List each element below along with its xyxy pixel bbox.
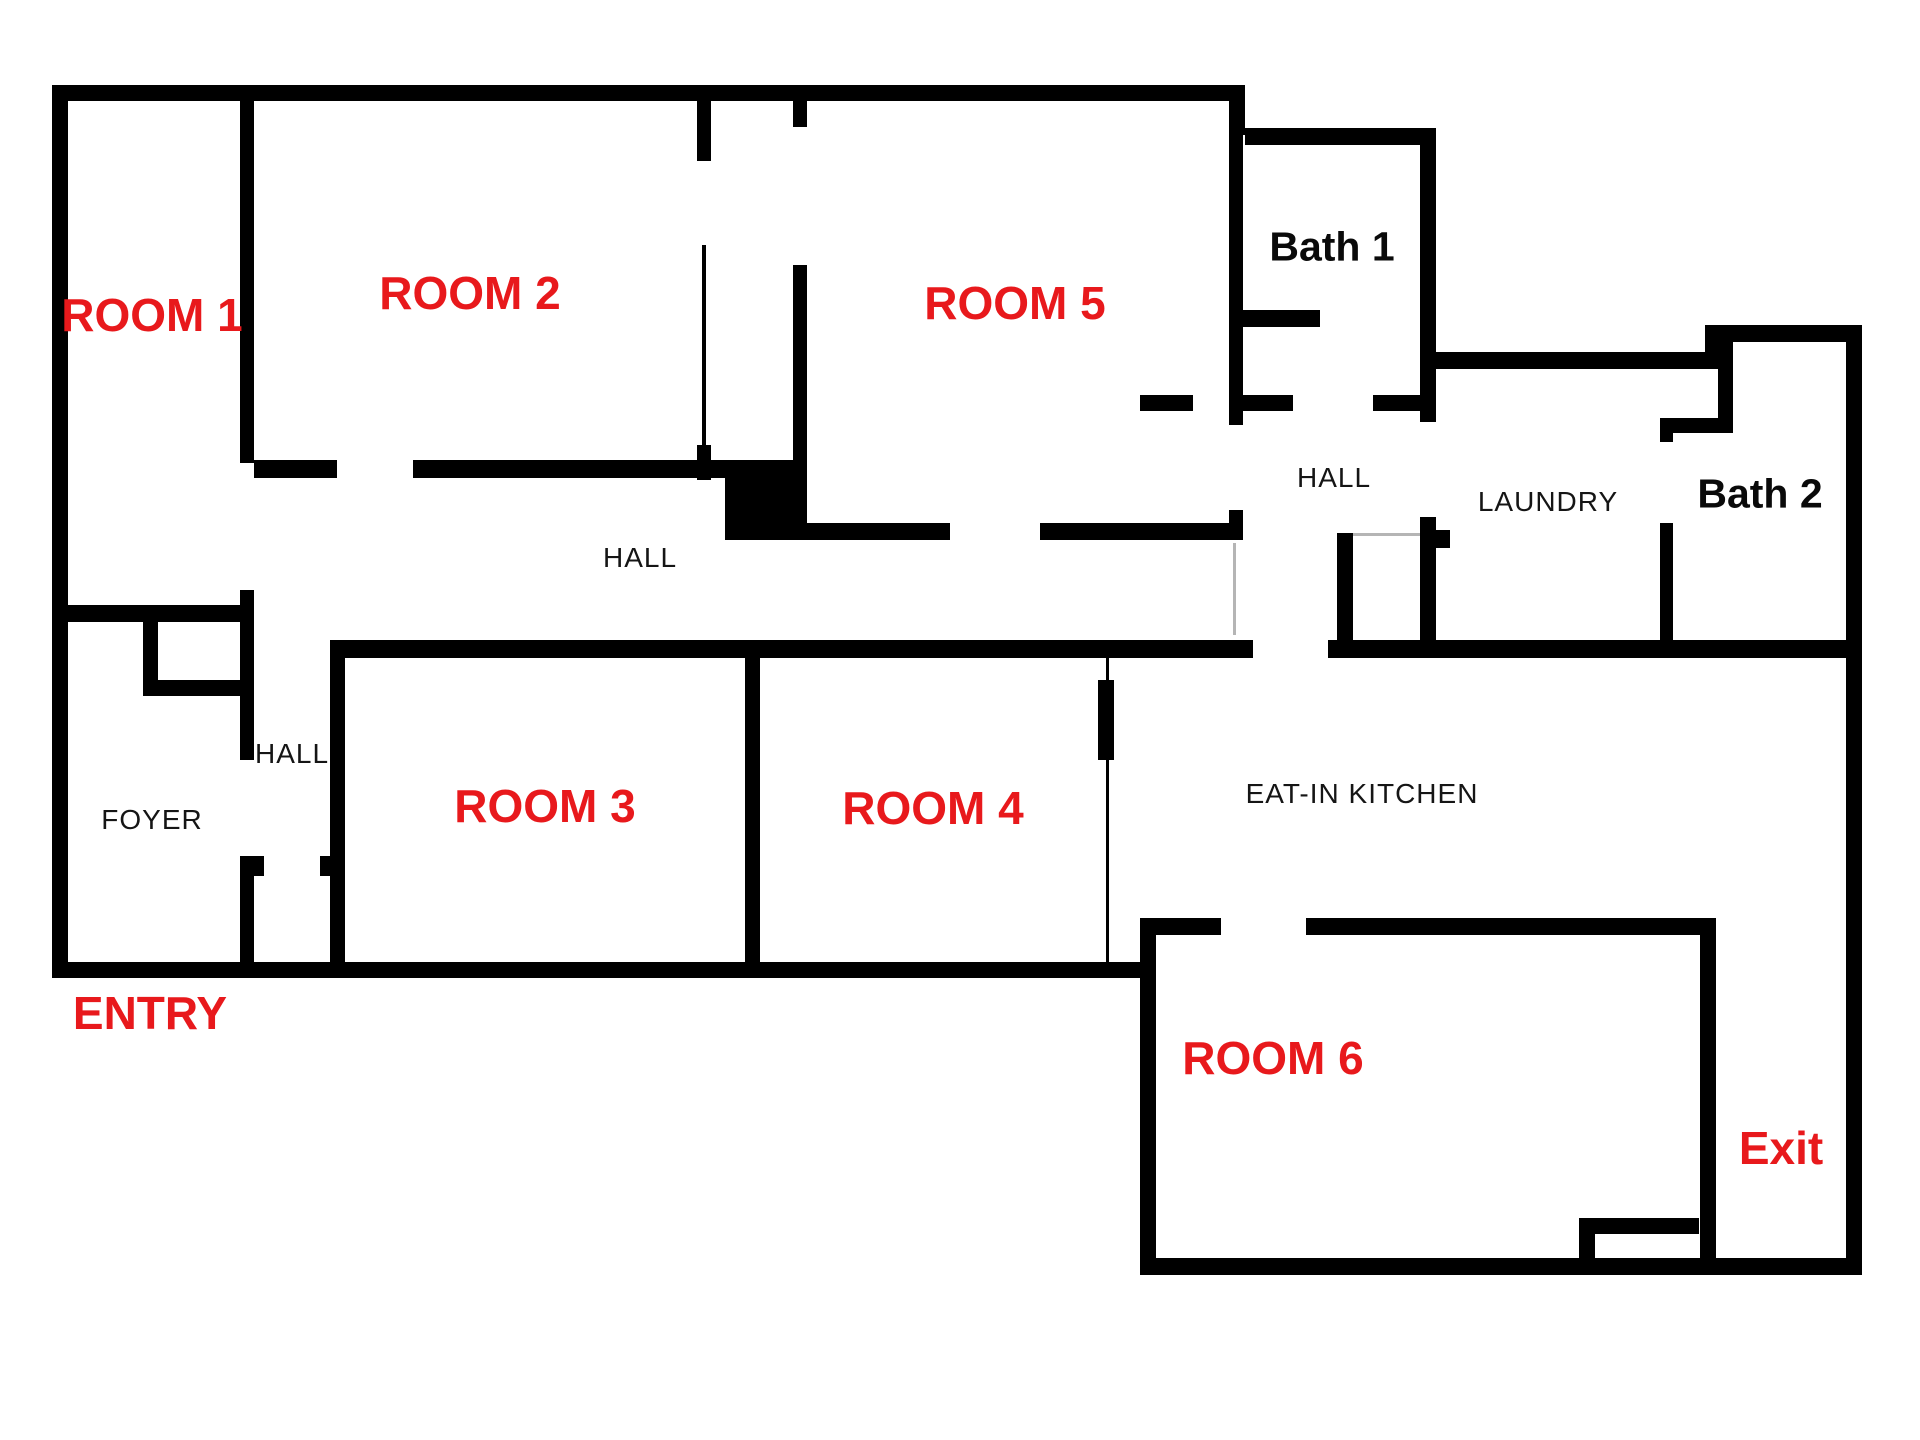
wall-segment	[143, 680, 254, 696]
door-opening	[1320, 310, 1420, 327]
wall-segment	[1106, 658, 1109, 680]
wall-segment	[807, 523, 950, 540]
wall-segment	[1106, 760, 1109, 962]
wall-segment	[1718, 325, 1862, 342]
wall-segment	[1229, 101, 1243, 425]
entry-label: ENTRY	[73, 990, 227, 1036]
door-opening	[337, 460, 413, 478]
door-threshold-line	[1353, 533, 1427, 536]
door-opening	[950, 523, 1040, 540]
wall-segment	[1373, 395, 1420, 411]
hall-lower-label: HALL	[255, 740, 329, 768]
door-opening	[240, 463, 254, 590]
wall-segment	[413, 460, 729, 478]
door-threshold-line	[1233, 543, 1236, 635]
room-label-bath-1: Bath 1	[1269, 227, 1394, 268]
wall-segment	[793, 265, 807, 470]
wall-segment	[1436, 530, 1450, 548]
wall-segment	[1700, 935, 1716, 1258]
wall-segment	[240, 590, 254, 760]
wall-segment	[1846, 325, 1862, 1275]
room-label-room-2: ROOM 2	[379, 270, 560, 316]
wall-segment	[1660, 433, 1673, 442]
floor-plan: ROOM 1 ROOM 2 ROOM 3 ROOM 4 ROOM 5 ROOM …	[0, 0, 1920, 1440]
wall-segment	[52, 605, 254, 622]
wall-segment	[697, 101, 711, 161]
door-opening	[1660, 442, 1673, 523]
door-opening	[793, 127, 807, 265]
wall-segment	[52, 962, 1156, 978]
wall-segment	[240, 101, 254, 463]
wall-segment	[1306, 918, 1716, 935]
wall-segment	[1040, 523, 1233, 540]
wall-segment	[1243, 310, 1320, 327]
wall-segment	[330, 640, 1253, 658]
wall-segment	[1420, 370, 1436, 422]
wall-segment	[254, 460, 337, 478]
wall-segment	[1328, 640, 1846, 658]
room-label-room-1: ROOM 1	[61, 292, 242, 338]
kitchen-label: EAT-IN KITCHEN	[1246, 780, 1479, 808]
door-opening	[240, 760, 254, 856]
wall-segment	[702, 245, 706, 445]
wall-segment	[1660, 523, 1673, 658]
door-opening	[1293, 395, 1373, 411]
wall-segment	[1140, 1258, 1862, 1275]
laundry-label: LAUNDRY	[1478, 488, 1618, 516]
wall-segment	[1243, 395, 1293, 411]
wall-segment	[745, 658, 760, 962]
hall-middle-label: HALL	[603, 544, 677, 572]
room-label-room-3: ROOM 3	[454, 783, 635, 829]
wall-segment	[1140, 395, 1193, 411]
door-opening	[1420, 422, 1436, 517]
room-label-room-6: ROOM 6	[1182, 1035, 1363, 1081]
wall-segment	[330, 640, 345, 962]
wall-segment	[1245, 128, 1436, 145]
door-opening	[1229, 422, 1243, 517]
wall-segment	[1579, 1234, 1595, 1258]
wall-segment	[1420, 128, 1436, 370]
room-label-room-5: ROOM 5	[924, 280, 1105, 326]
foyer-label: FOYER	[101, 806, 202, 834]
wall-segment	[1098, 680, 1114, 760]
wall-segment	[320, 856, 330, 876]
wall-segment	[240, 856, 254, 962]
wall-segment	[254, 856, 264, 876]
wall-segment	[793, 101, 807, 127]
wall-segment	[1579, 1218, 1699, 1234]
wall-segment	[1337, 533, 1353, 643]
room-label-room-4: ROOM 4	[842, 785, 1023, 831]
exit-label: Exit	[1739, 1125, 1823, 1171]
wall-segment	[1436, 352, 1718, 369]
wall-segment	[697, 445, 711, 480]
door-opening	[697, 161, 711, 245]
wall-segment	[52, 85, 1245, 101]
hall-upper-label: HALL	[1297, 464, 1371, 492]
wall-segment	[52, 85, 68, 978]
room-label-bath-2: Bath 2	[1697, 474, 1822, 515]
wall-segment	[725, 460, 807, 540]
wall-segment	[1420, 517, 1436, 658]
wall-segment	[143, 622, 158, 680]
